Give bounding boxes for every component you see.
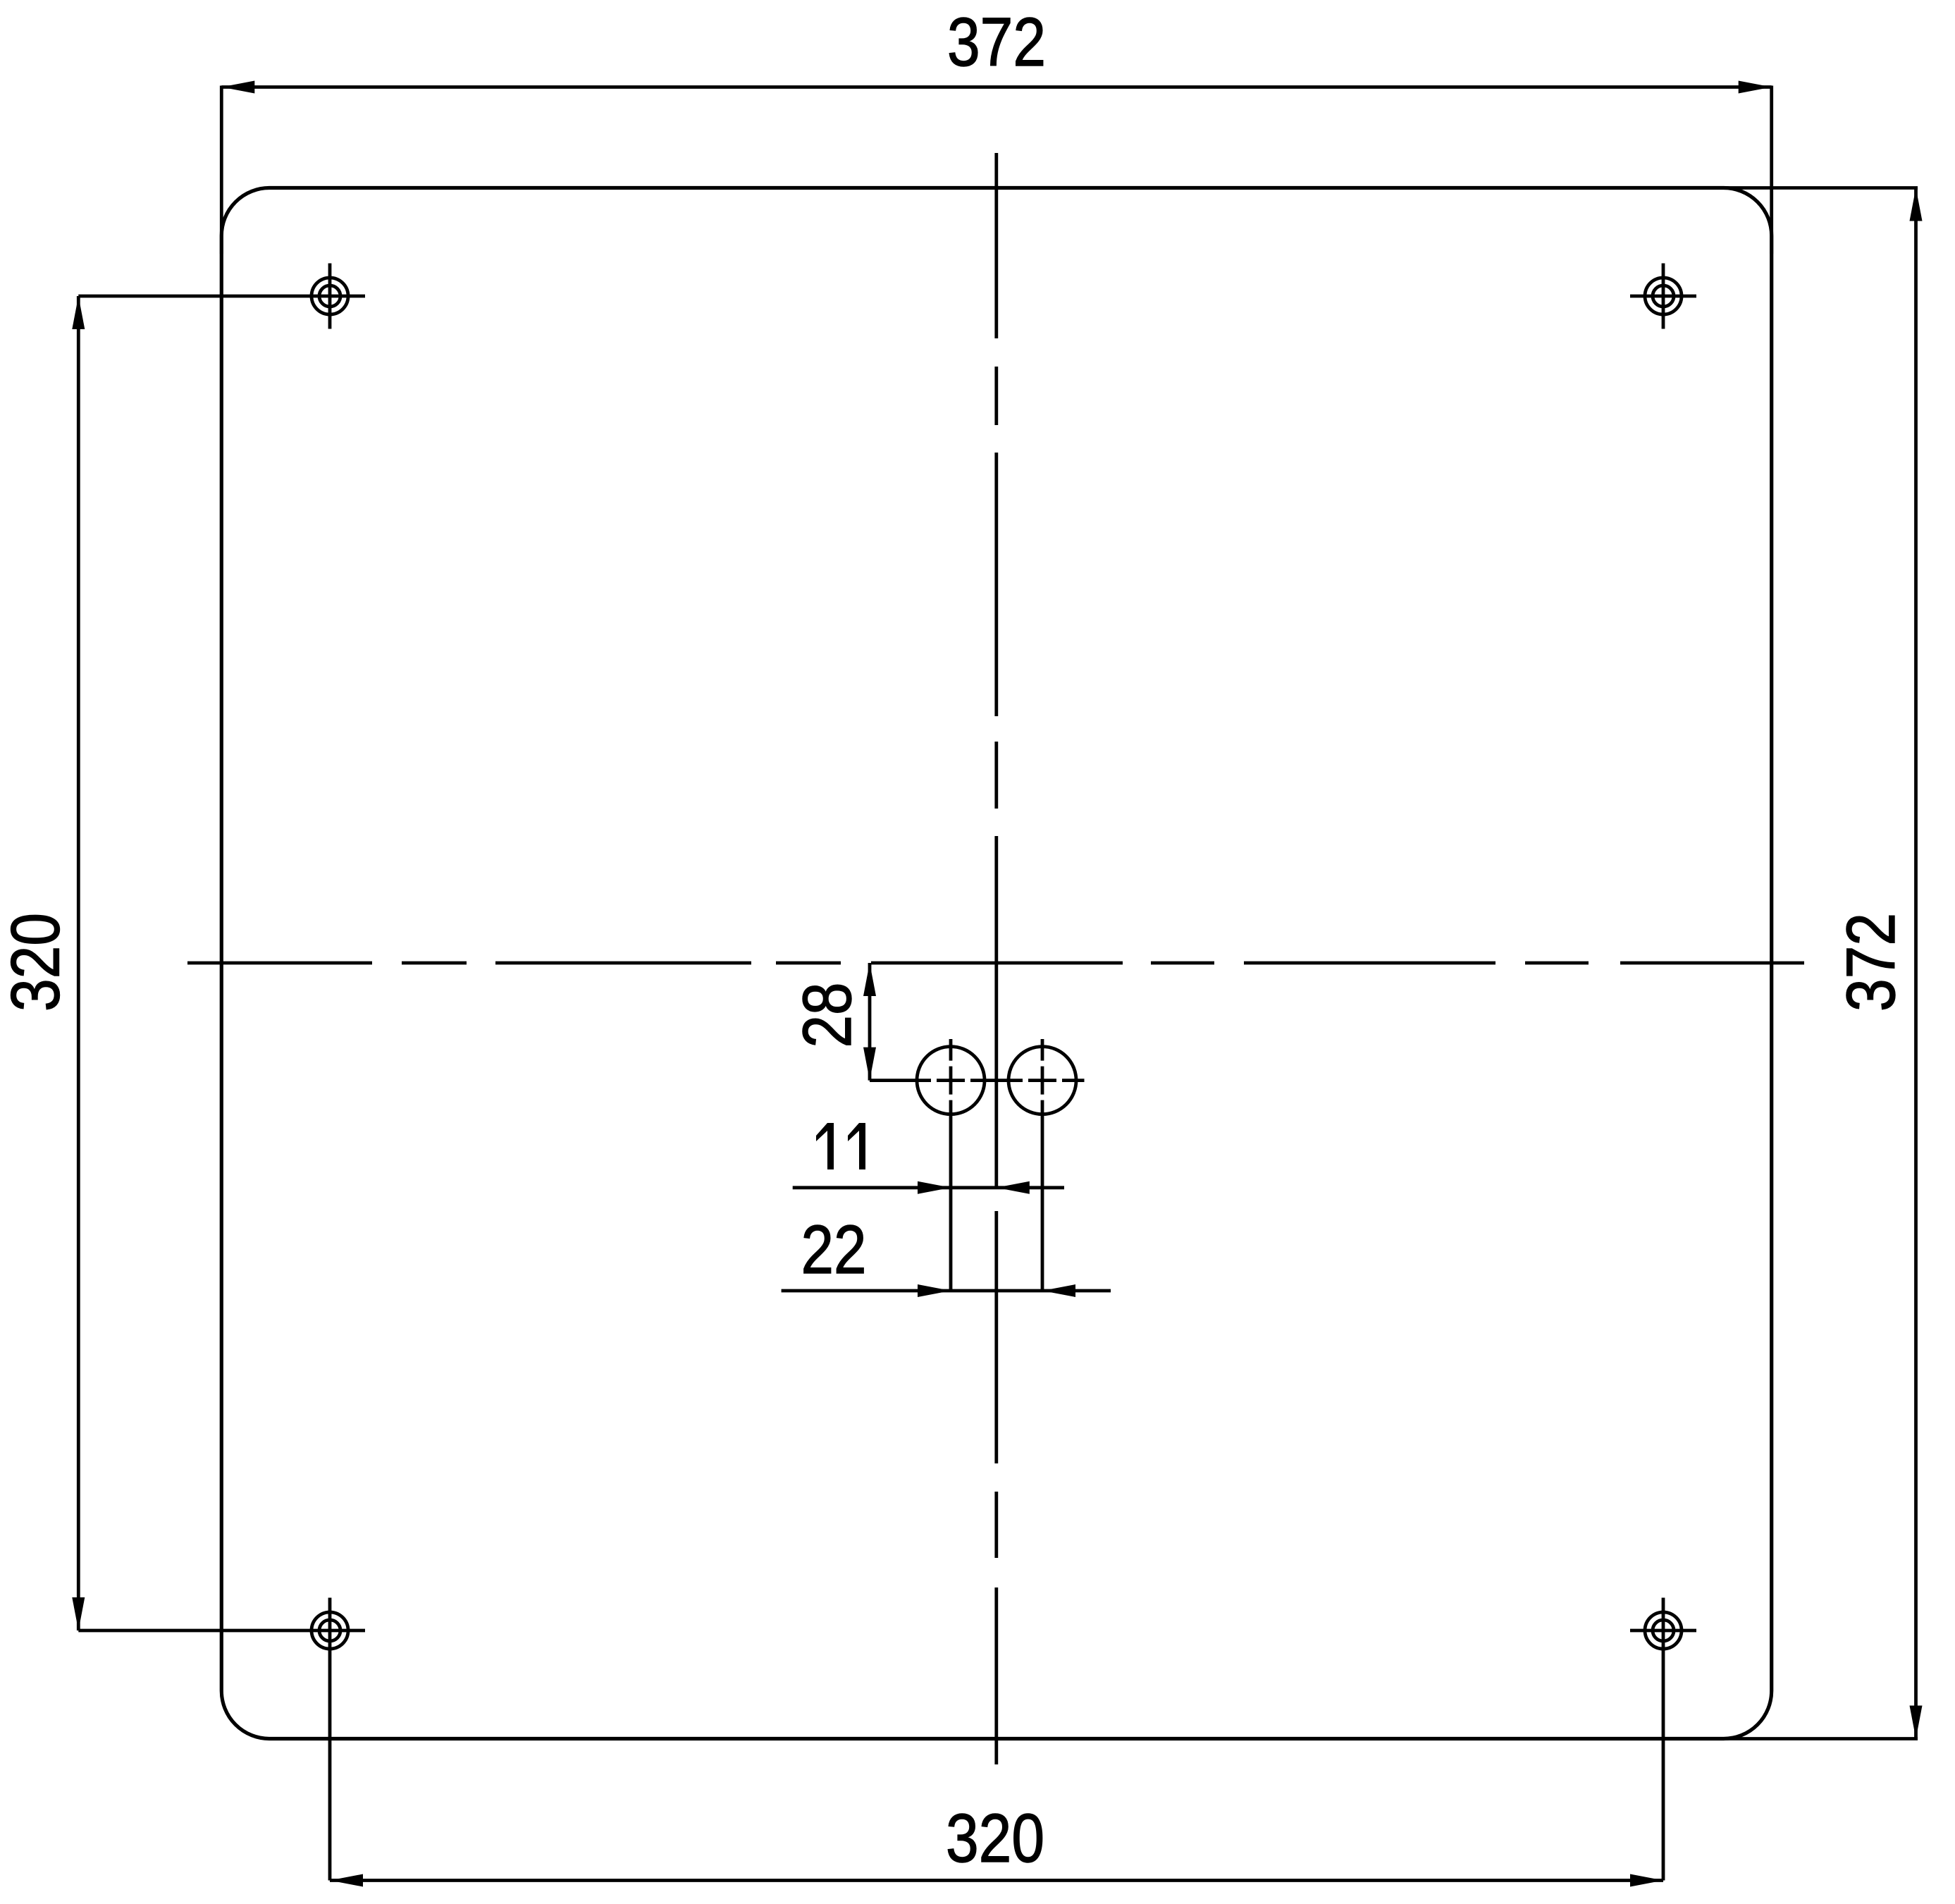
svg-text:372: 372 xyxy=(1832,913,1909,1012)
svg-text:28: 28 xyxy=(789,983,865,1048)
svg-text:372: 372 xyxy=(947,4,1046,80)
svg-text:320: 320 xyxy=(0,913,74,1012)
svg-text:22: 22 xyxy=(801,1211,867,1288)
svg-text:320: 320 xyxy=(946,1800,1044,1877)
